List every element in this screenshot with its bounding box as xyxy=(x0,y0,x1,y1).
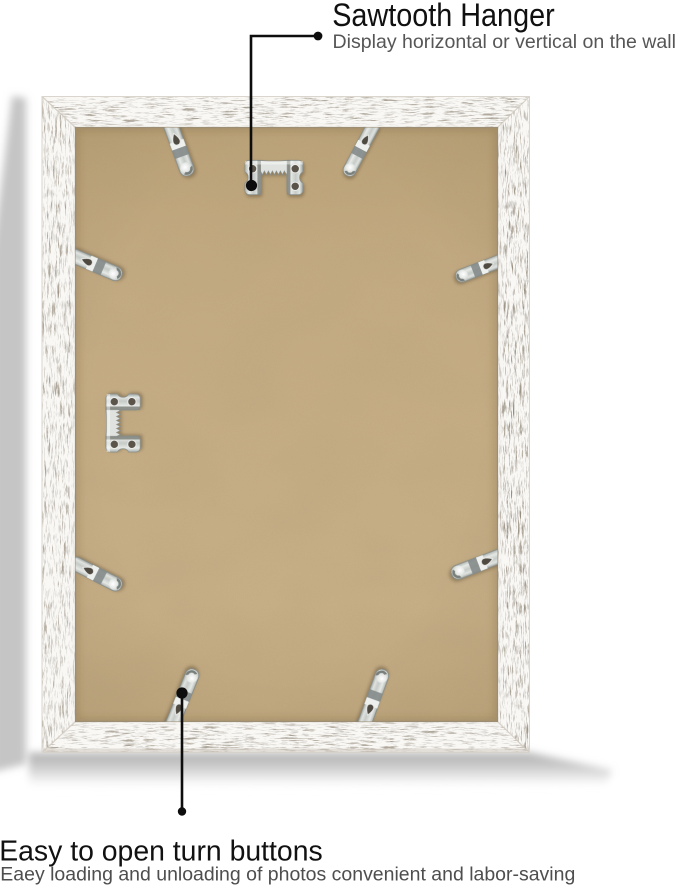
svg-text:Display horizontal or vertical: Display horizontal or vertical on the wa… xyxy=(333,31,677,53)
svg-text:Sawtooth Hanger: Sawtooth Hanger xyxy=(332,0,555,33)
svg-text:Eaey loading and unloading of: Eaey loading and unloading of photos con… xyxy=(0,864,575,886)
svg-text:Easy to open turn buttons: Easy to open turn buttons xyxy=(0,835,323,867)
